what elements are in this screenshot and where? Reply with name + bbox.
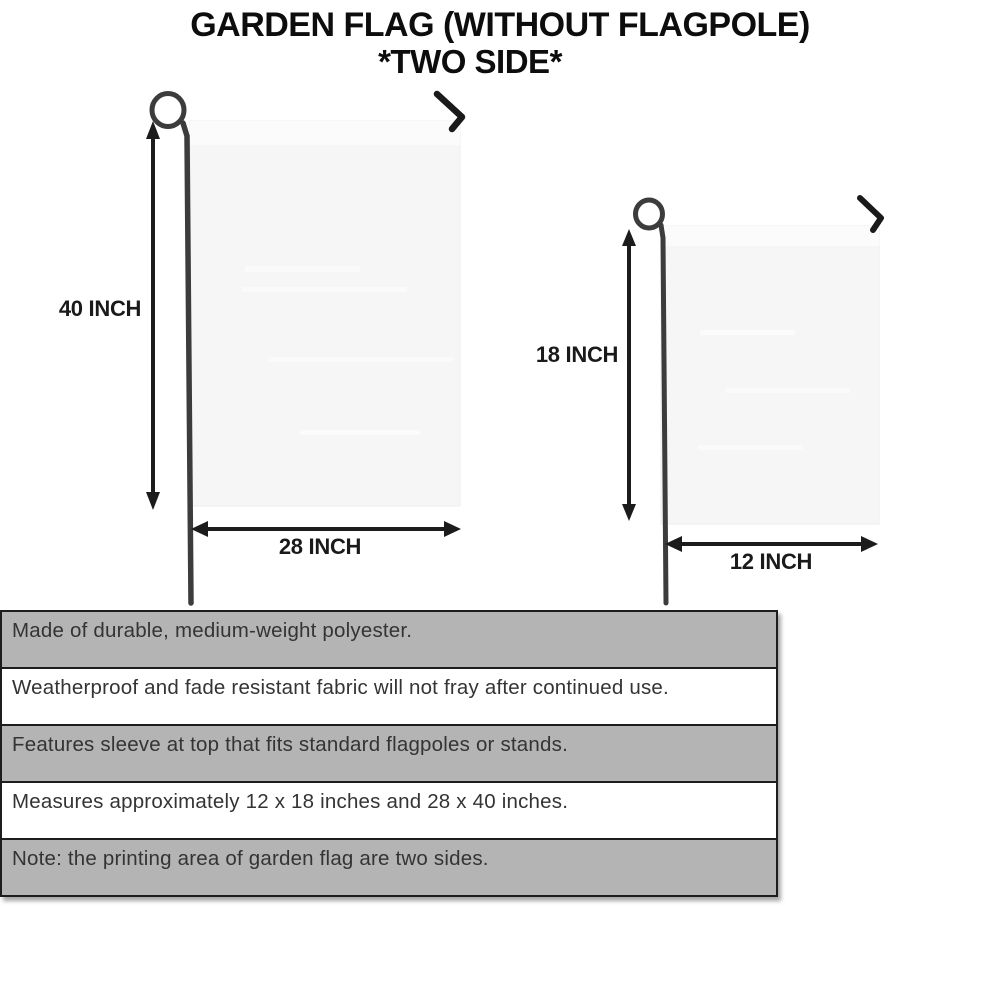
small-flag-diagram bbox=[622, 198, 881, 603]
feature-row: Weatherproof and fade resistant fabric w… bbox=[0, 667, 778, 726]
feature-text: Made of durable, medium-weight polyester… bbox=[12, 619, 412, 642]
width-label-small: 12 INCH bbox=[715, 549, 827, 575]
feature-text: Measures approximately 12 x 18 inches an… bbox=[12, 790, 568, 813]
pole-loop-icon bbox=[152, 94, 184, 127]
small-flag-fabric bbox=[661, 226, 879, 524]
feature-row: Measures approximately 12 x 18 inches an… bbox=[0, 781, 778, 840]
height-label-large: 40 INCH bbox=[44, 296, 156, 322]
pole-loop-icon bbox=[636, 200, 663, 228]
feature-text: Note: the printing area of garden flag a… bbox=[12, 847, 489, 870]
feature-row: Features sleeve at top that fits standar… bbox=[0, 724, 778, 783]
flag-hook-icon bbox=[860, 198, 881, 230]
small-flag-sleeve bbox=[661, 226, 879, 246]
feature-text: Weatherproof and fade resistant fabric w… bbox=[12, 676, 669, 699]
feature-row: Made of durable, medium-weight polyester… bbox=[0, 610, 778, 669]
height-label-small: 18 INCH bbox=[521, 342, 633, 368]
height-arrow-small bbox=[622, 229, 636, 521]
feature-row: Note: the printing area of garden flag a… bbox=[0, 838, 778, 897]
features-table: Made of durable, medium-weight polyester… bbox=[0, 610, 778, 897]
product-infographic: GARDEN FLAG (WITHOUT FLAGPOLE) *TWO SIDE… bbox=[0, 0, 1000, 1000]
flagpole-large bbox=[183, 123, 191, 603]
feature-text: Features sleeve at top that fits standar… bbox=[12, 733, 568, 756]
width-label-large: 28 INCH bbox=[264, 534, 376, 560]
large-flag-diagram bbox=[146, 94, 462, 604]
large-flag-sleeve bbox=[190, 121, 460, 145]
large-flag-fabric bbox=[190, 121, 460, 506]
